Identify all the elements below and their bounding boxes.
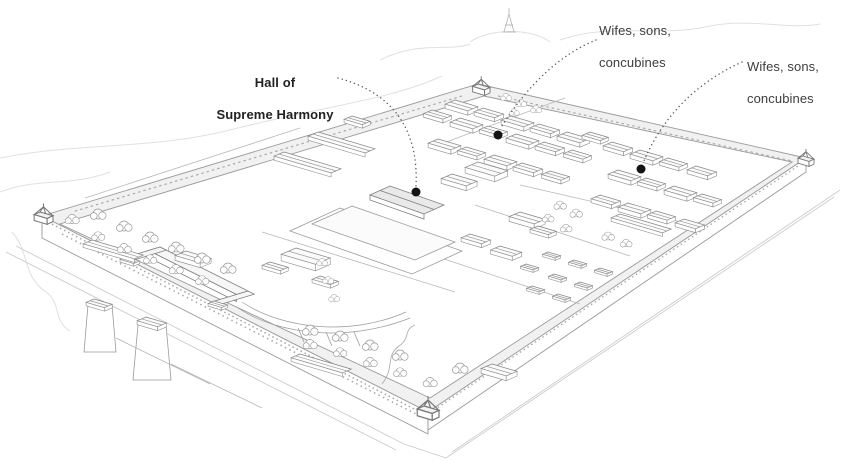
- hall-central-harmony: [441, 174, 477, 191]
- corner-tower-ne: [798, 149, 814, 167]
- label-wives-sons-concubines-north: Wifes, sons, concubines: [599, 7, 709, 87]
- label-wives-sons-concubines-east: Wifes, sons, concubines: [747, 43, 848, 123]
- jingshan-pagoda: [502, 8, 516, 32]
- forbidden-city-diagram: Hall of Supreme Harmony Wifes, sons, con…: [0, 0, 848, 462]
- palace-illustration: [0, 0, 848, 462]
- eastern-palaces-buildings: [582, 132, 721, 237]
- label-hall-of-supreme-harmony: Hall of Supreme Harmony: [210, 59, 340, 139]
- hall-of-supreme-harmony-building: [370, 186, 444, 219]
